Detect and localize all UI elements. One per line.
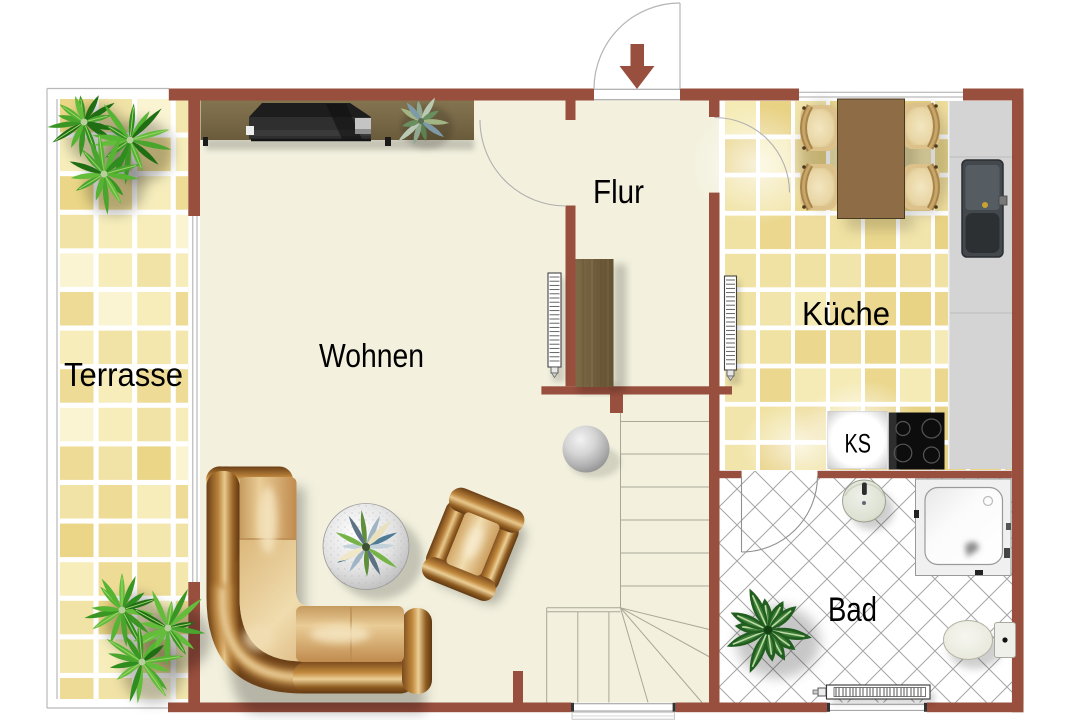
svg-text:Bad: Bad [828, 591, 877, 629]
svg-text:Wohnen: Wohnen [319, 337, 424, 374]
svg-text:Terrasse: Terrasse [64, 356, 183, 393]
svg-text:KS: KS [845, 429, 872, 459]
svg-text:Flur: Flur [593, 173, 644, 210]
svg-text:Küche: Küche [802, 295, 890, 332]
